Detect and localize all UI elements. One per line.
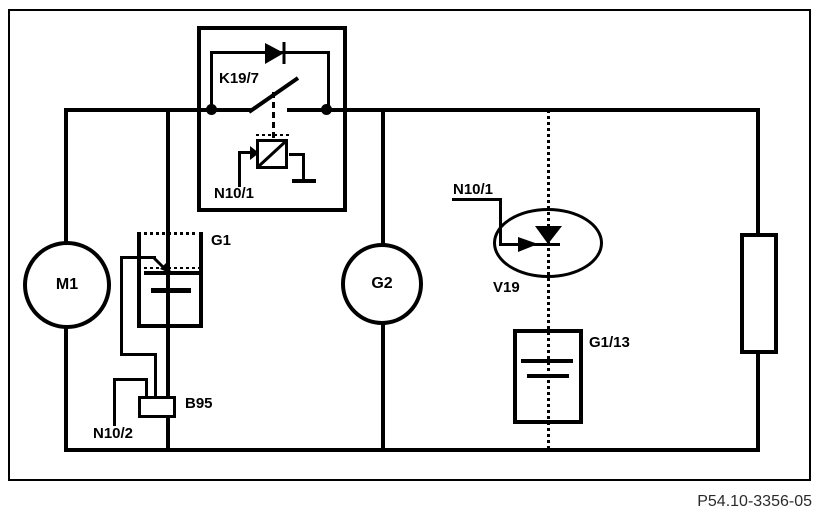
- relay-control-n10-1-label: N10/1: [214, 186, 254, 201]
- control-n10-2-label: N10/2: [93, 426, 133, 441]
- drawing-number: P54.10-3356-05: [645, 493, 812, 511]
- diagram-glyphs: [0, 0, 817, 520]
- relay-coil-diagonal: [259, 142, 285, 166]
- battery-g1-label: G1: [211, 233, 231, 248]
- junction-dot-right: [321, 104, 332, 115]
- relay-diode-icon: [265, 43, 284, 64]
- coil-feed-arrow-icon: [250, 146, 259, 160]
- battery-g1-13-label: G1/13: [589, 335, 630, 350]
- wiring-diagram-canvas: M1 G2 K19/7 N10/1 G1 B95 N10/2 N10/1 V19…: [0, 0, 817, 520]
- v19-diode-icon: [535, 226, 562, 244]
- sensor-b95-label: B95: [185, 396, 213, 411]
- junction-dot-left: [206, 104, 217, 115]
- diode-v19-label: V19: [493, 280, 520, 295]
- v19-arrow-icon: [518, 237, 538, 252]
- led-control-n10-1-label: N10/1: [453, 182, 493, 197]
- g1-arrow-diagonal: [153, 257, 164, 268]
- relay-k19-7-label: K19/7: [219, 71, 259, 86]
